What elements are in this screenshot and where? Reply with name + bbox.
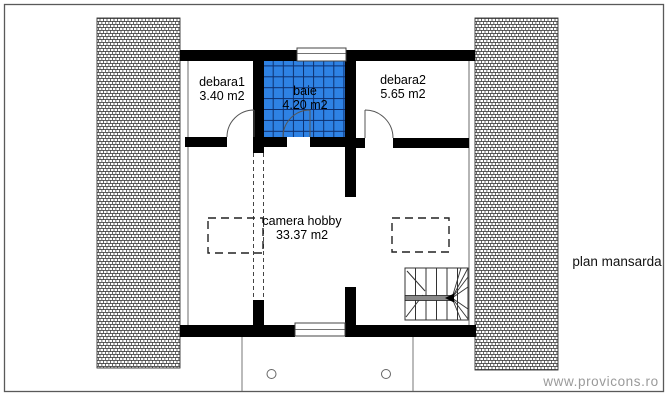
balcony (242, 337, 413, 391)
room-area: 33.37 m2 (262, 229, 341, 243)
room-area: 4.20 m2 (282, 99, 327, 113)
wall-chimney-stub (253, 300, 264, 325)
wall-baie-left (253, 50, 264, 153)
wall-baie-right (345, 50, 356, 197)
balcony-circle-left (267, 370, 276, 379)
room-label-debara2: debara2 5.65 m2 (380, 74, 426, 102)
wall-top-left (180, 50, 297, 61)
room-name: debara1 (199, 76, 245, 90)
drawing-title: plan mansarda (572, 254, 661, 269)
doors (227, 110, 393, 138)
wall-baie-bottom-right (310, 137, 345, 147)
floor-plan-page: debara1 3.40 m2 baie 4.20 m2 debara2 5.6… (0, 0, 668, 400)
watermark-text: www.provicons.ro (543, 374, 658, 389)
skylight-dashed-left (208, 218, 263, 253)
door-debara2 (365, 110, 393, 138)
roof-hatch-left (97, 18, 180, 368)
balcony-side-lines (242, 337, 413, 391)
door-debara1 (227, 110, 254, 137)
skylight-dashed-right (392, 218, 449, 252)
wall-mid-stub (345, 287, 356, 325)
staircase (405, 268, 468, 320)
wall-top-right (346, 50, 475, 61)
wall-debara2-stub (356, 138, 365, 148)
wall-debara2-bottom (393, 138, 469, 148)
room-area: 3.40 m2 (199, 90, 245, 104)
room-name: debara2 (380, 74, 426, 88)
room-name: camera hobby (262, 215, 341, 229)
wall-bottom-right (345, 325, 476, 337)
wall-baie-bottom-left (264, 137, 287, 147)
window-top (297, 48, 346, 61)
roof-hatch-right (475, 18, 558, 370)
room-name: baie (282, 85, 327, 99)
wall-bottom-left (180, 325, 295, 337)
room-area: 5.65 m2 (380, 88, 426, 102)
floor-plan-drawing (0, 0, 668, 400)
stairs-handrail (405, 296, 452, 301)
wall-debara1-bottom (185, 137, 227, 147)
balcony-circle-right (382, 370, 391, 379)
room-label-camera-hobby: camera hobby 33.37 m2 (262, 215, 341, 243)
room-label-debara1: debara1 3.40 m2 (199, 76, 245, 104)
room-label-baie: baie 4.20 m2 (282, 85, 327, 113)
